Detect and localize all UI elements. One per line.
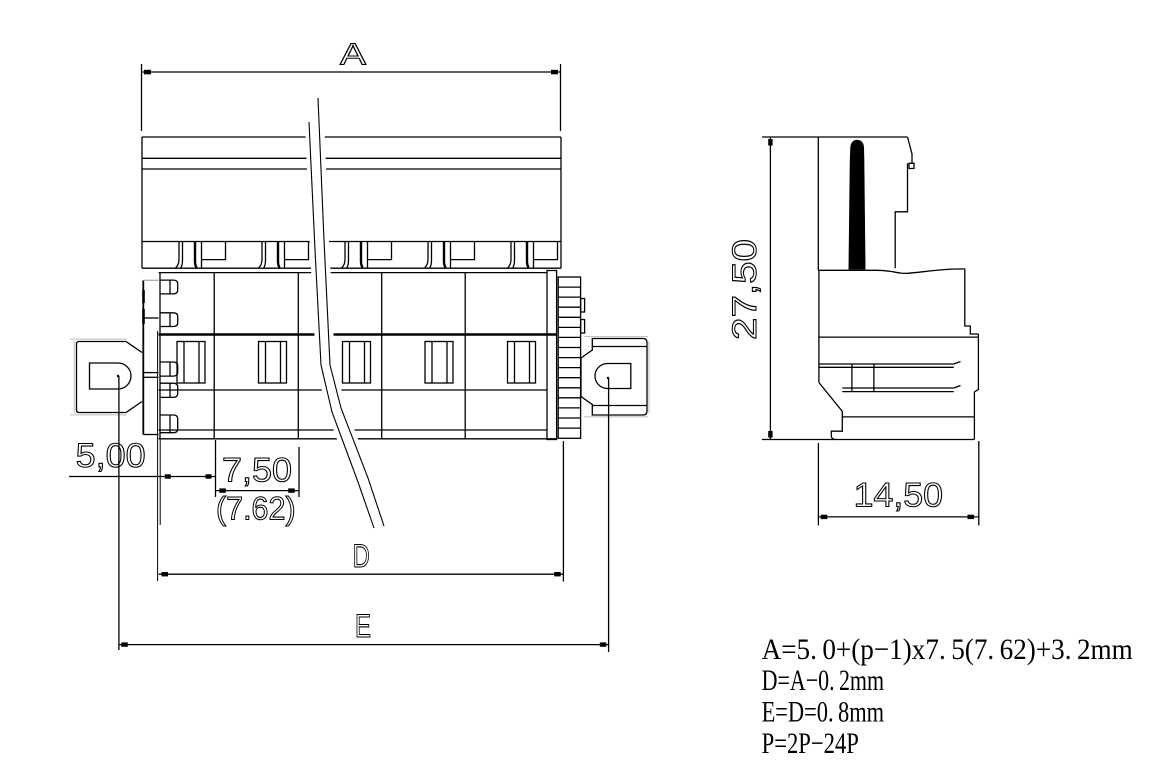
svg-text:(7.62): (7.62) [216, 491, 296, 527]
svg-text:D=A−0. 2mm: D=A−0. 2mm [762, 664, 885, 697]
svg-text:5,00: 5,00 [76, 437, 146, 475]
svg-text:E: E [355, 608, 371, 644]
svg-text:P=2P−24P: P=2P−24P [762, 727, 859, 760]
svg-text:7,50: 7,50 [222, 452, 292, 490]
svg-text:14,50: 14,50 [854, 477, 943, 515]
svg-text:D: D [353, 538, 370, 574]
svg-text:E=D=0. 8mm: E=D=0. 8mm [762, 696, 885, 729]
svg-text:A=5. 0+(p−1)x7. 5(7. 62)+3. 2m: A=5. 0+(p−1)x7. 5(7. 62)+3. 2mm [762, 633, 1133, 666]
svg-text:A: A [340, 37, 366, 72]
svg-text:27,50: 27,50 [726, 239, 764, 340]
